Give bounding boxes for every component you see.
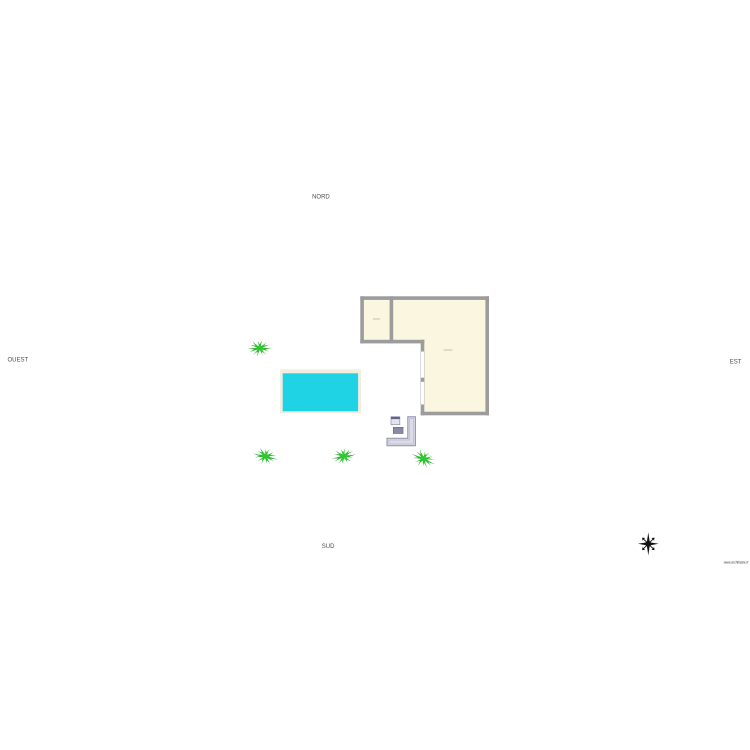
svg-text:www.archifacile.fr: www.archifacile.fr	[724, 561, 750, 565]
svg-text:OUEST: OUEST	[7, 358, 28, 364]
svg-text:NORD: NORD	[312, 194, 330, 200]
svg-text:EST: EST	[730, 360, 742, 366]
svg-text:SUD: SUD	[322, 544, 335, 550]
